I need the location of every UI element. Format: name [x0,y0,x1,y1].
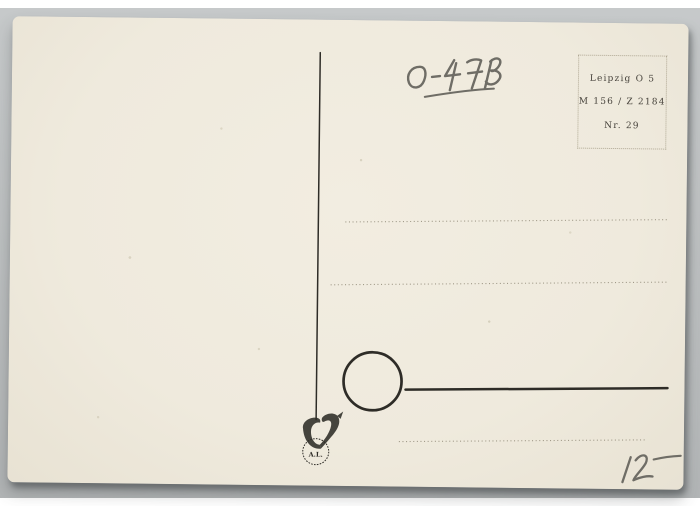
divider-line [316,53,320,420]
publisher-initials: A.L. [308,451,323,459]
handwritten-price: 12 – [622,455,680,483]
signature-rule-line [405,385,667,392]
address-line-2 [331,278,668,288]
printed-and-written-marks: O-4713 A.L. 12 – [7,16,688,490]
publisher-mark: A.L. [302,411,343,465]
publisher-monogram-letter [303,418,321,449]
publisher-monogram-letter-right [320,413,340,449]
stamp-guide-circle [343,352,402,411]
handwritten-postal-code: O-4713 [408,57,501,97]
postcard-back: Leipzig O 5 M 156 / Z 2184 Nr. 29 O-4713 [7,16,688,490]
address-line-3 [399,437,645,444]
address-line-1 [345,216,668,226]
